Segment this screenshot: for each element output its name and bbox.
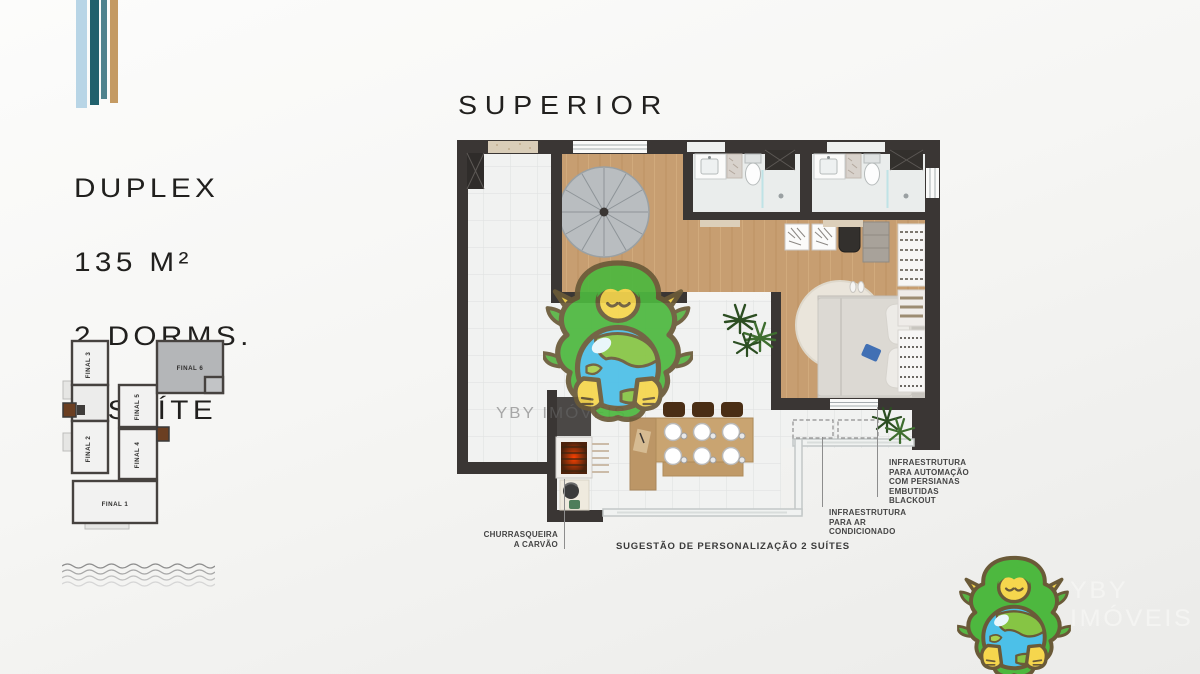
annotation-air-conditioning: INFRAESTRUTURA PARA AR CONDICIONADO [829,508,939,537]
key-label-final2: FINAL 2 [85,436,92,463]
slipper [858,282,864,293]
key-label-final6: FINAL 6 [177,365,204,372]
stripe-teal [101,0,107,99]
flyer-page: DUPLEX 135 M² 2 DORMS. 1 SUÍTE FINAL 3 F… [0,0,1200,674]
sink [820,159,837,174]
annotation-churrasqueira: CHURRASQUEIRA A CARVÃO [468,530,558,549]
toilet [746,163,761,185]
shower-drain [779,194,784,199]
logo-text: YBY IMÓVEIS [1070,577,1200,633]
key-elevator-core-2 [157,427,169,441]
yby-mascot-watermark-icon [543,254,693,428]
planter-box [488,141,538,153]
key-plan: FINAL 3 FINAL 2 FINAL 5 FINAL 4 FINAL 1 … [55,333,235,533]
leader-line-automation [877,407,878,497]
dining-chair [692,402,714,417]
stripe-darkteal [90,0,99,105]
leader-line-air-conditioning [822,437,823,507]
brand-stripes [76,0,118,108]
dining-chair [721,402,743,417]
annotation-automation: INFRAESTRUTURA PARA AUTOMAÇÃO COM PERSIA… [889,458,1009,506]
clothes-shelf [898,330,925,392]
stripe-tan [110,0,118,103]
slipper [850,282,856,293]
key-label-final1: FINAL 1 [102,501,129,508]
listing-line-area: 135 M² [74,247,193,277]
toilet [865,163,880,185]
plant-pot [569,500,580,509]
plan-caption: SUGESTÃO DE PERSONALIZAÇÃO 2 SUÍTES [616,541,850,552]
floor-plan [457,140,940,522]
floor-title: SUPERIOR [458,90,669,121]
sink [701,159,718,174]
dresser [863,222,889,262]
key-label-final3: FINAL 3 [85,352,92,379]
leader-line-churrasqueira [564,479,565,549]
bath-mat [823,220,863,227]
stripe-lightblue [76,0,87,108]
toilet-tank [864,154,880,163]
dining-bench [630,418,656,490]
bath-mat [700,220,740,227]
key-label-final4: FINAL 4 [134,442,141,469]
toilet-tank [745,154,761,163]
key-label-final5: FINAL 5 [134,394,141,421]
shower-drain [904,194,909,199]
yby-mascot-logo-icon [957,551,1071,674]
spiral-staircase [559,167,649,257]
key-elevator-core [63,403,76,417]
waves-ornament [62,562,215,590]
suite-window [830,399,878,409]
listing-line-type: DUPLEX [74,173,219,203]
clothes-shelf [898,224,925,286]
